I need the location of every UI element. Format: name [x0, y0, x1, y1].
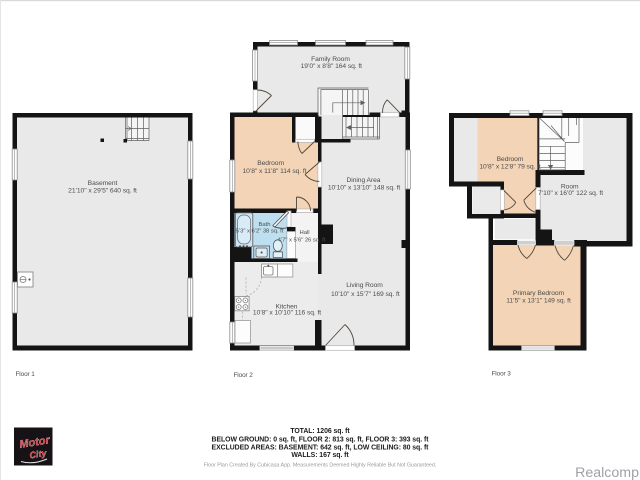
svg-text:7’10" x 16’0" 122 sq. ft: 7’10" x 16’0" 122 sq. ft — [538, 190, 603, 197]
svg-text:Floor 1: Floor 1 — [16, 371, 36, 378]
svg-text:21’10" x 29’5" 640 sq. ft: 21’10" x 29’5" 640 sq. ft — [68, 188, 137, 195]
svg-text:Floor 3: Floor 3 — [492, 371, 512, 378]
svg-text:Basement: Basement — [88, 180, 118, 187]
svg-text:Living Room: Living Room — [346, 282, 383, 289]
svg-text:4’7" x 5’6" 26 sq. ft: 4’7" x 5’6" 26 sq. ft — [278, 238, 326, 244]
svg-text:11’5" x 13’1" 149 sq. ft: 11’5" x 13’1" 149 sq. ft — [506, 298, 571, 305]
svg-text:19’0" x 8’8" 164 sq. ft: 19’0" x 8’8" 164 sq. ft — [301, 63, 363, 70]
svg-text:Hall: Hall — [300, 230, 310, 236]
svg-text:BELOW GROUND: 0 sq. ft, FLOOR: BELOW GROUND: 0 sq. ft, FLOOR 2: 813 sq.… — [212, 437, 430, 444]
svg-text:Dining Area: Dining Area — [347, 177, 381, 184]
svg-text:Realcomp: Realcomp — [575, 465, 639, 480]
svg-text:10’8" x 12’8" 79 sq. ft: 10’8" x 12’8" 79 sq. ft — [479, 163, 541, 170]
svg-text:10’8" x 10’10" 116 sq. ft: 10’8" x 10’10" 116 sq. ft — [253, 310, 321, 317]
svg-text:10’8" x 11’8" 114 sq. ft: 10’8" x 11’8" 114 sq. ft — [242, 168, 306, 175]
svg-text:Bedroom: Bedroom — [257, 160, 284, 167]
svg-text:TOTAL: 1206 sq. ft: TOTAL: 1206 sq. ft — [290, 428, 350, 435]
svg-text:Floor Plan Created By Cubicasa: Floor Plan Created By Cubicasa App. Meas… — [204, 463, 437, 469]
svg-text:Bath: Bath — [259, 222, 271, 228]
svg-text:EXCLUDED AREAS: BASEMENT: 642: EXCLUDED AREAS: BASEMENT: 642 sq. ft, LO… — [212, 445, 430, 452]
svg-text:Primary Bedroom: Primary Bedroom — [513, 290, 565, 297]
svg-text:10’10" x 15’7" 169 sq. ft: 10’10" x 15’7" 169 sq. ft — [331, 291, 400, 298]
svg-text:WALLS: 167 sq. ft: WALLS: 167 sq. ft — [291, 452, 349, 459]
svg-text:10’10" x 13’10" 148 sq. ft: 10’10" x 13’10" 148 sq. ft — [328, 185, 401, 192]
svg-text:Bedroom: Bedroom — [497, 156, 524, 163]
svg-text:5’3" x 6’2" 38 sq. ft: 5’3" x 6’2" 38 sq. ft — [236, 229, 284, 235]
svg-text:Floor 2: Floor 2 — [234, 372, 254, 379]
